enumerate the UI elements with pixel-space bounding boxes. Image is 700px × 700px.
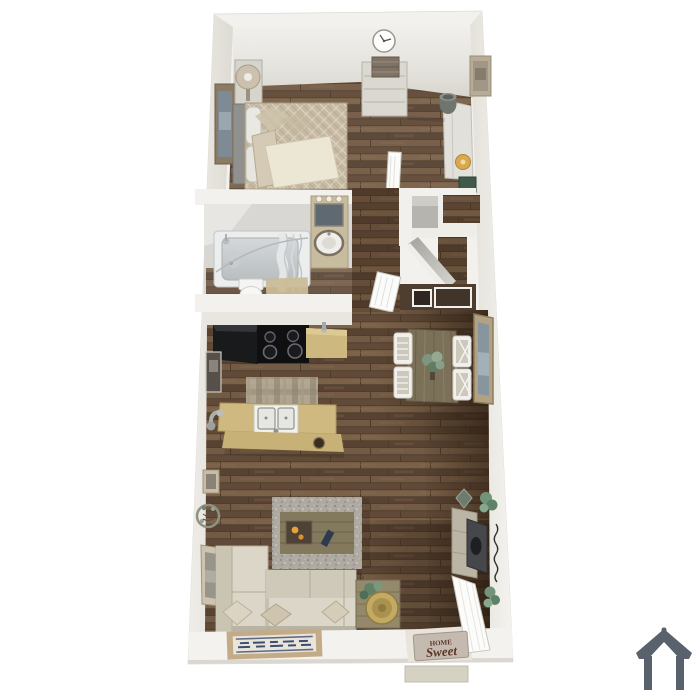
svg-text:Sweet: Sweet bbox=[425, 643, 457, 660]
